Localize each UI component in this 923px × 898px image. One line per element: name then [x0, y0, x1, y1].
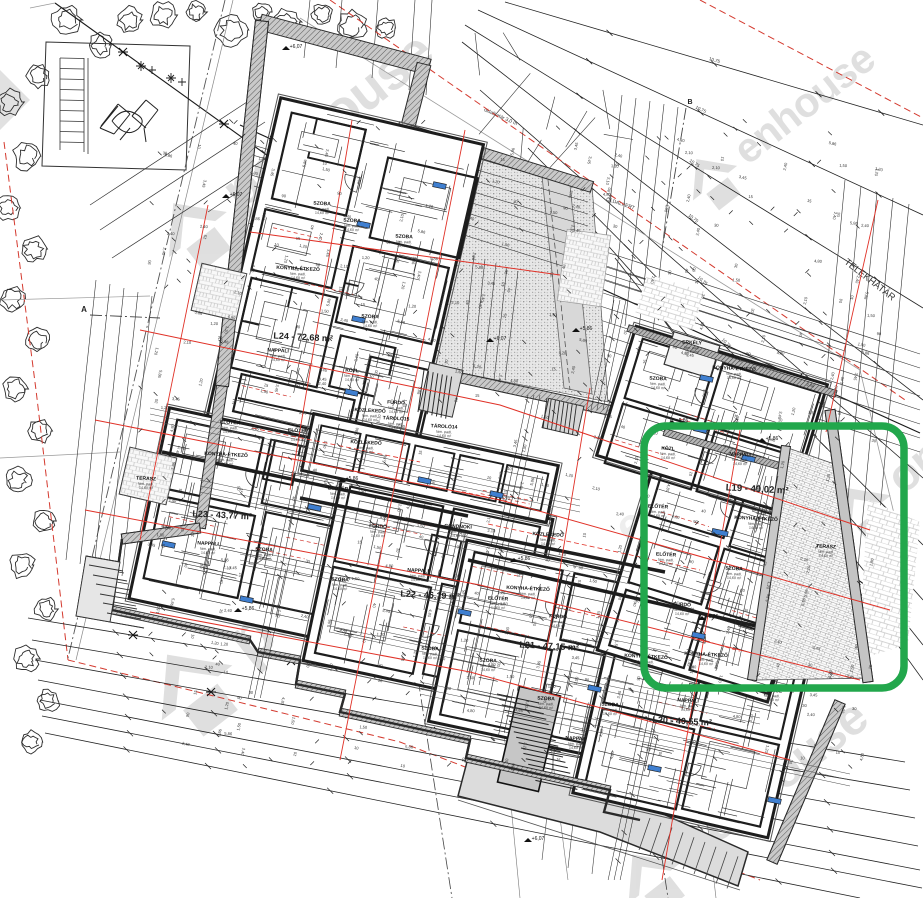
svg-text:14,60 m²: 14,60 m² — [437, 434, 452, 439]
svg-text:3,45: 3,45 — [229, 565, 238, 570]
svg-text:2,10: 2,10 — [340, 263, 349, 268]
svg-text:2,40: 2,40 — [807, 712, 816, 717]
svg-text:2,40: 2,40 — [168, 498, 177, 503]
svg-text:14,60 m²: 14,60 m² — [699, 662, 714, 667]
svg-text:5,86: 5,86 — [850, 220, 859, 225]
svg-text:14,60 m²: 14,60 m² — [661, 456, 676, 461]
svg-text:1,20: 1,20 — [377, 631, 386, 636]
svg-text:2,10: 2,10 — [183, 339, 192, 344]
svg-text:4,80: 4,80 — [437, 656, 446, 661]
svg-text:1,20: 1,20 — [408, 303, 417, 308]
svg-text:3,45: 3,45 — [299, 410, 308, 415]
svg-text:14,60 m²: 14,60 m² — [331, 496, 346, 501]
svg-text:3,45: 3,45 — [604, 414, 613, 419]
svg-text:5,86: 5,86 — [221, 557, 230, 562]
svg-text:4,80: 4,80 — [385, 563, 394, 568]
svg-text:14,60 m²: 14,60 m² — [201, 551, 216, 556]
svg-text:14,60 m²: 14,60 m² — [223, 430, 238, 435]
svg-text:+6,07: +6,07 — [532, 836, 545, 842]
svg-text:1,50: 1,50 — [156, 532, 165, 537]
svg-text:2,10: 2,10 — [685, 150, 694, 155]
svg-text:14,60 m²: 14,60 m² — [363, 324, 378, 329]
svg-text:5,86: 5,86 — [224, 731, 233, 736]
svg-text:1,20: 1,20 — [220, 641, 229, 646]
svg-text:5,86: 5,86 — [475, 264, 484, 269]
svg-text:14,60 m²: 14,60 m² — [345, 378, 360, 383]
svg-text:14,60 m²: 14,60 m² — [291, 276, 306, 281]
svg-text:1,20: 1,20 — [362, 255, 371, 260]
svg-text:1,20: 1,20 — [460, 637, 469, 642]
svg-text:+6,07: +6,07 — [290, 44, 303, 50]
svg-text:14,60 m²: 14,60 m² — [603, 712, 618, 717]
svg-text:1,50: 1,50 — [732, 277, 741, 282]
svg-text:1,50: 1,50 — [321, 308, 330, 313]
svg-text:14,60 m²: 14,60 m² — [271, 358, 286, 363]
svg-text:14,60 m²: 14,60 m² — [569, 746, 584, 751]
svg-text:14,60 m²: 14,60 m² — [345, 228, 360, 233]
svg-text:1,50: 1,50 — [867, 313, 876, 318]
svg-text:14,60 m²: 14,60 m² — [333, 587, 348, 592]
svg-text:14,60 m²: 14,60 m² — [539, 706, 554, 711]
svg-text:1,50: 1,50 — [506, 674, 515, 679]
svg-text:14,60 m²: 14,60 m² — [291, 438, 306, 443]
svg-text:2,40: 2,40 — [692, 722, 701, 727]
svg-text:1,50: 1,50 — [550, 210, 559, 215]
svg-text:+5,86: +5,86 — [242, 606, 255, 612]
svg-text:3,45: 3,45 — [572, 655, 581, 660]
svg-text:14,60 m²: 14,60 m² — [651, 514, 666, 519]
svg-text:3,45: 3,45 — [810, 692, 819, 697]
svg-text:3,45: 3,45 — [487, 280, 496, 285]
svg-text:B: B — [687, 99, 692, 106]
svg-text:2,40: 2,40 — [167, 231, 176, 236]
svg-text:14,60 m²: 14,60 m² — [139, 486, 154, 491]
svg-text:14,60 m²: 14,60 m² — [491, 606, 506, 611]
svg-text:2,40: 2,40 — [224, 608, 233, 613]
svg-text:14,60 m²: 14,60 m² — [219, 462, 234, 467]
svg-text:14,60 m²: 14,60 m² — [423, 656, 438, 661]
svg-text:2,40: 2,40 — [616, 511, 625, 516]
svg-text:2,40: 2,40 — [200, 224, 209, 229]
svg-text:A: A — [81, 305, 87, 314]
svg-text:14,60 m²: 14,60 m² — [819, 554, 834, 559]
svg-text:1,50: 1,50 — [417, 523, 426, 528]
svg-text:14,60 m²: 14,60 m² — [371, 534, 386, 539]
svg-text:3,45: 3,45 — [172, 396, 181, 401]
svg-text:14,60 m²: 14,60 m² — [521, 596, 536, 601]
svg-text:2,10: 2,10 — [451, 300, 460, 305]
svg-text:14,60 m²: 14,60 m² — [541, 542, 556, 547]
svg-text:1,20: 1,20 — [258, 156, 267, 161]
svg-text:14,60 m²: 14,60 m² — [397, 244, 412, 249]
svg-text:14,60 m²: 14,60 m² — [675, 612, 690, 617]
svg-text:+5,86: +5,86 — [518, 556, 531, 562]
svg-text:14,60 m²: 14,60 m² — [481, 668, 496, 673]
svg-text:1,50: 1,50 — [352, 576, 361, 581]
svg-text:14,60 m²: 14,60 m² — [727, 376, 742, 381]
svg-text:5,86: 5,86 — [405, 744, 414, 749]
svg-text:4,80: 4,80 — [733, 714, 742, 719]
svg-text:+6,07: +6,07 — [494, 336, 507, 342]
svg-text:2,10: 2,10 — [338, 577, 347, 582]
svg-text:5,86: 5,86 — [430, 256, 439, 261]
svg-text:14,60 m²: 14,60 m² — [411, 578, 426, 583]
svg-text:4,80: 4,80 — [467, 708, 476, 713]
svg-text:2,10: 2,10 — [205, 664, 214, 669]
svg-text:1,50: 1,50 — [359, 724, 368, 729]
svg-text:1,20: 1,20 — [161, 405, 170, 410]
svg-text:14,60 m²: 14,60 m² — [651, 386, 666, 391]
svg-text:2,10: 2,10 — [712, 165, 721, 170]
svg-text:1,50: 1,50 — [466, 675, 475, 680]
svg-text:1,20: 1,20 — [558, 350, 567, 355]
svg-text:14,60 m²: 14,60 m² — [765, 698, 780, 703]
svg-text:3,45: 3,45 — [573, 228, 582, 233]
svg-text:+6,07: +6,07 — [230, 192, 243, 198]
svg-text:14,60 m²: 14,60 m² — [681, 708, 696, 713]
svg-text:1,50: 1,50 — [548, 683, 557, 688]
svg-text:2,10: 2,10 — [487, 528, 496, 533]
svg-text:4,80: 4,80 — [488, 662, 497, 667]
svg-text:3,45: 3,45 — [319, 376, 328, 381]
svg-text:2,40: 2,40 — [165, 525, 174, 530]
svg-text:1,20: 1,20 — [210, 321, 219, 326]
svg-text:2,40: 2,40 — [861, 223, 870, 228]
svg-text:14,60 m²: 14,60 m² — [727, 576, 742, 581]
svg-text:14,60 m²: 14,60 m² — [659, 562, 674, 567]
svg-text:+5,86: +5,86 — [346, 476, 359, 482]
svg-text:4,80: 4,80 — [814, 258, 823, 263]
svg-text:4,80: 4,80 — [380, 514, 389, 519]
svg-text:14,60 m²: 14,60 m² — [257, 557, 272, 562]
svg-text:14,60 m²: 14,60 m² — [551, 624, 566, 629]
svg-text:1,50: 1,50 — [839, 163, 848, 168]
svg-text:+5,86: +5,86 — [706, 614, 719, 620]
svg-text:14,60 m²: 14,60 m² — [359, 450, 374, 455]
svg-text:4,80: 4,80 — [777, 350, 786, 355]
svg-text:4,80: 4,80 — [510, 378, 519, 383]
svg-text:14,60 m²: 14,60 m² — [749, 526, 764, 531]
svg-text:1,50: 1,50 — [500, 601, 509, 606]
svg-text:14,60 m²: 14,60 m² — [733, 462, 748, 467]
svg-text:1,20: 1,20 — [497, 590, 506, 595]
svg-text:14,60 m²: 14,60 m² — [389, 410, 404, 415]
svg-text:14,60 m²: 14,60 m² — [315, 211, 330, 216]
svg-text:+5,86: +5,86 — [580, 326, 593, 332]
